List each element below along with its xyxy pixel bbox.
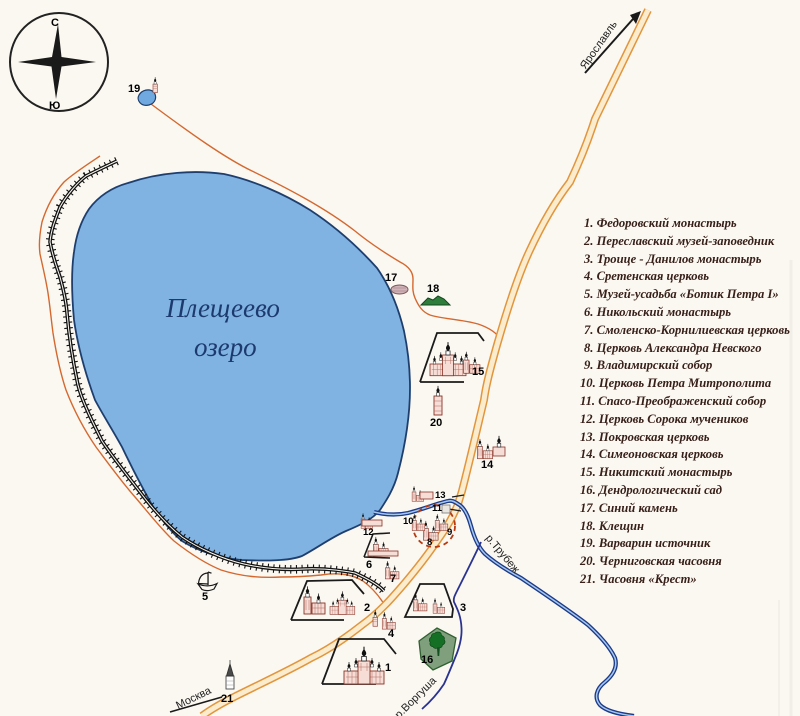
svg-text:14. Симеоновская церковь: 14. Симеоновская церковь [580, 447, 724, 461]
svg-text:2. Переславский музей-заповед: 2. Переславский музей-заповедник [583, 234, 775, 248]
svg-text:6: 6 [366, 559, 372, 571]
svg-text:5. Музей-усадьба «Ботик Петр: 5. Музей-усадьба «Ботик Петра I» [584, 287, 779, 301]
svg-text:7. Смоленско-Корнилиевская це: 7. Смоленско-Корнилиевская церковь [584, 323, 790, 337]
svg-text:20: 20 [430, 417, 442, 429]
svg-text:озеро: озеро [194, 332, 257, 362]
svg-text:18. Клещин: 18. Клещин [580, 519, 644, 533]
svg-text:6. Никольский монастырь: 6. Никольский монастырь [584, 305, 731, 319]
svg-text:16: 16 [421, 654, 433, 666]
svg-text:7: 7 [390, 573, 396, 585]
svg-text:3: 3 [460, 602, 466, 614]
svg-text:8. Церковь Александра Невског: 8. Церковь Александра Невского [584, 341, 762, 355]
svg-text:19. Варварин источник: 19. Варварин источник [580, 536, 711, 550]
svg-text:1: 1 [385, 662, 391, 674]
svg-text:9. Владимирский собор: 9. Владимирский собор [584, 358, 712, 372]
svg-text:19: 19 [128, 83, 140, 95]
svg-text:4: 4 [388, 628, 395, 640]
svg-text:5: 5 [202, 591, 208, 603]
svg-text:12. Церковь Сорока мучеников: 12. Церковь Сорока мучеников [580, 412, 749, 426]
svg-text:3. Троице - Данилов монастырь: 3. Троице - Данилов монастырь [583, 252, 762, 266]
svg-text:14: 14 [481, 459, 494, 471]
svg-text:17. Синий камень: 17. Синий камень [580, 501, 678, 515]
svg-text:17: 17 [385, 272, 397, 284]
svg-text:8: 8 [427, 537, 432, 548]
svg-text:9: 9 [447, 527, 452, 538]
svg-text:18: 18 [427, 283, 439, 295]
svg-text:12: 12 [363, 527, 374, 538]
svg-text:11: 11 [432, 503, 443, 514]
svg-text:Плещеево: Плещеево [165, 293, 280, 323]
svg-text:15: 15 [472, 366, 484, 378]
svg-text:11. Спасо-Преображенский собор: 11. Спасо-Преображенский собор [580, 394, 766, 408]
svg-text:С: С [51, 17, 59, 29]
svg-text:16. Дендрологический сад: 16. Дендрологический сад [580, 483, 722, 497]
svg-text:13: 13 [435, 490, 446, 501]
svg-text:21. Часовня «Крест»: 21. Часовня «Крест» [579, 572, 697, 586]
svg-text:1. Федоровский монастырь: 1. Федоровский монастырь [584, 216, 737, 230]
svg-text:Ю: Ю [49, 100, 60, 112]
svg-text:2: 2 [364, 602, 370, 614]
svg-text:15. Никитский монастырь: 15. Никитский монастырь [580, 465, 733, 479]
svg-text:10: 10 [403, 516, 414, 527]
svg-text:21: 21 [221, 693, 233, 705]
svg-text:4. Сретенская церковь: 4. Сретенская церковь [583, 269, 709, 283]
svg-text:10. Церковь Петра Митрополита: 10. Церковь Петра Митрополита [580, 376, 771, 390]
svg-text:13. Покровская церковь: 13. Покровская церковь [580, 430, 710, 444]
svg-text:20. Черниговская часовня: 20. Черниговская часовня [579, 554, 722, 568]
